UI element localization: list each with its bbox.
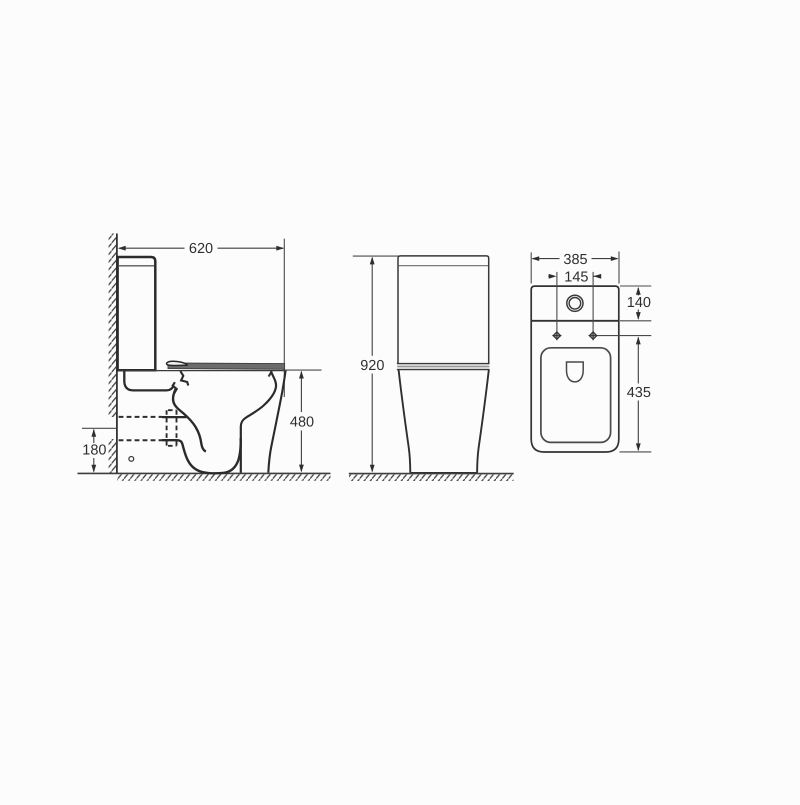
svg-text:480: 480 [290, 414, 314, 430]
svg-text:620: 620 [189, 241, 213, 257]
svg-text:435: 435 [627, 385, 651, 401]
svg-text:145: 145 [564, 270, 588, 286]
svg-text:140: 140 [627, 295, 651, 311]
svg-text:180: 180 [82, 442, 106, 458]
svg-text:920: 920 [360, 358, 384, 374]
svg-text:385: 385 [563, 252, 587, 268]
